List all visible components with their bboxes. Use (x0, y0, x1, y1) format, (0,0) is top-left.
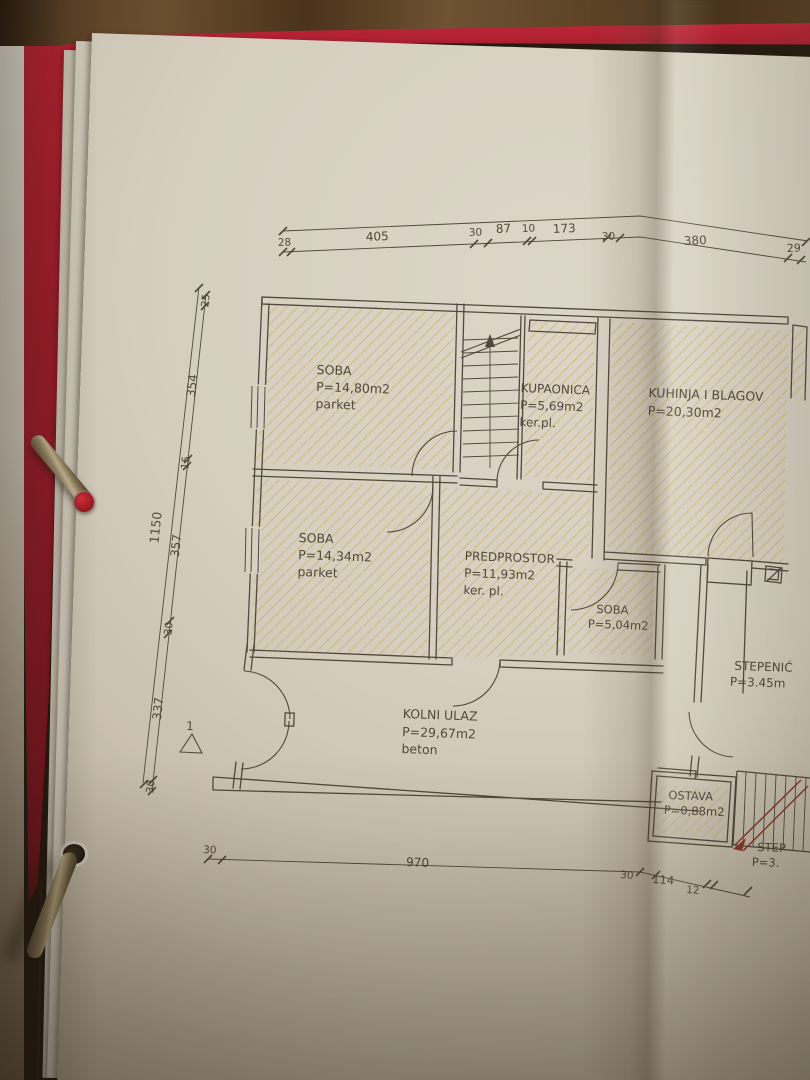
svg-text:parket: parket (297, 564, 338, 580)
svg-text:P=29,67m2: P=29,67m2 (402, 724, 476, 742)
dim-left-overall: 1150 (146, 511, 164, 544)
dim-left-5: 337 (150, 696, 166, 720)
svg-text:SOBA: SOBA (298, 530, 334, 546)
svg-text:KOLNI ULAZ: KOLNI ULAZ (402, 706, 477, 724)
svg-text:P=14,34m2: P=14,34m2 (298, 547, 372, 565)
dim-left-3: 357 (168, 533, 184, 557)
svg-text:SOBA: SOBA (316, 362, 352, 378)
dim-top-5: 173 (553, 221, 576, 236)
svg-text:KUPAONICA: KUPAONICA (520, 381, 591, 397)
dim-top-1: 405 (366, 229, 389, 244)
dim-left-2: 15 (179, 455, 192, 470)
photo-scene: 28 405 30 87 10 173 30 380 29 25 354 15 … (0, 0, 810, 1080)
binder-fastener-top-hole (74, 492, 94, 512)
svg-text:ker. pl.: ker. pl. (463, 583, 504, 598)
dim-top-3: 87 (496, 221, 512, 236)
dim-left-0: 25 (199, 293, 212, 308)
dim-left-1: 354 (184, 373, 200, 397)
dim-top-0: 28 (278, 236, 292, 249)
dim-top-4: 10 (522, 222, 536, 235)
dim-top-2: 30 (469, 226, 483, 239)
svg-text:P=5,69m2: P=5,69m2 (520, 398, 584, 414)
room-label-kolni-ulaz: KOLNI ULAZ P=29,67m2 beton (401, 706, 478, 759)
svg-text:beton: beton (401, 741, 438, 757)
dim-bottom-0: 30 (203, 844, 217, 857)
staircase-interior (461, 329, 521, 468)
paper-right-shadow (700, 0, 810, 1080)
dim-left-6: 30 (144, 779, 157, 794)
svg-text:parket: parket (315, 396, 356, 412)
svg-text:ker.pl.: ker.pl. (519, 415, 556, 430)
dim-bottom-1: 970 (406, 855, 429, 870)
svg-text:P=11,93m2: P=11,93m2 (464, 566, 535, 582)
section-marker-number: 1 (186, 719, 194, 733)
svg-text:P=14,80m2: P=14,80m2 (316, 379, 390, 397)
dim-left-4: 30 (162, 621, 175, 636)
